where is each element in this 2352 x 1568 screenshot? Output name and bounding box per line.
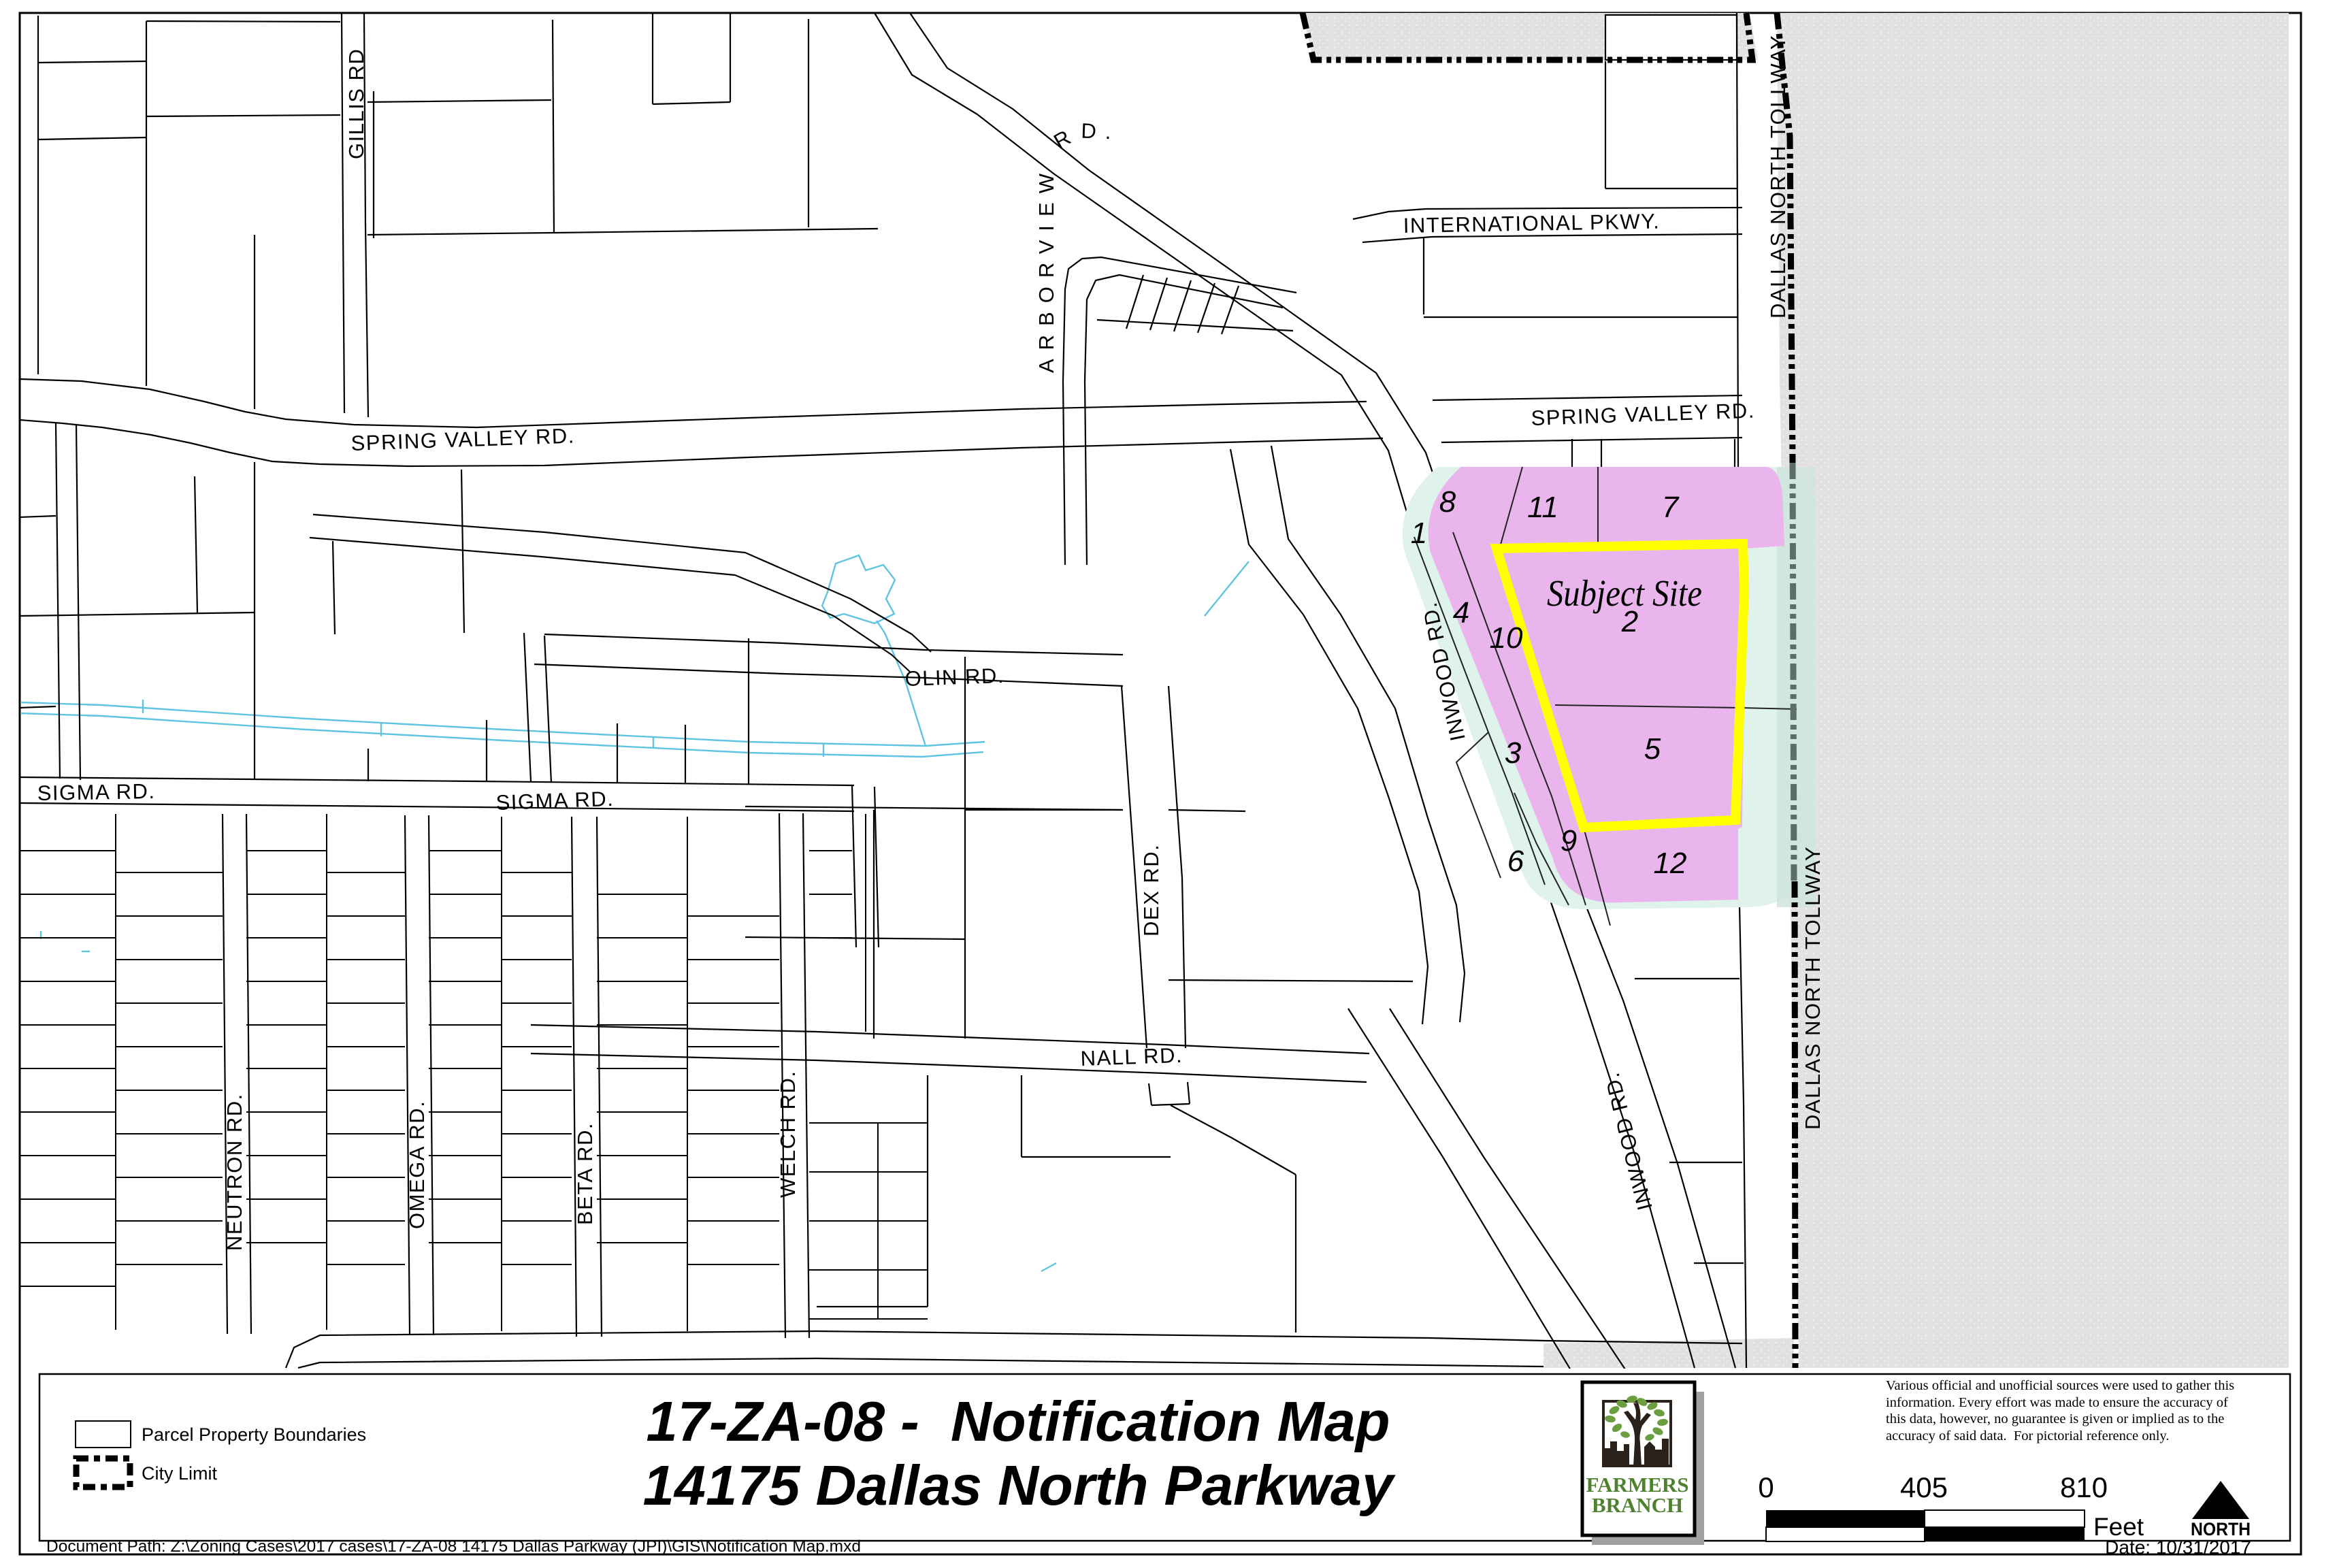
svg-text:405: 405 (1900, 1471, 1948, 1503)
svg-text:810: 810 (2060, 1471, 2108, 1503)
svg-text:4: 4 (1453, 596, 1469, 630)
svg-text:14175 Dallas North Parkway: 14175 Dallas North Parkway (643, 1454, 1396, 1517)
svg-text:8: 8 (1439, 485, 1456, 519)
svg-text:Document Path: Z:\Zoning Cases: Document Path: Z:\Zoning Cases\2017 case… (46, 1537, 861, 1556)
svg-text:5: 5 (1644, 732, 1661, 766)
svg-text:11: 11 (1527, 491, 1558, 524)
svg-text:SIGMA RD.: SIGMA RD. (495, 787, 615, 815)
svg-text:NEUTRON RD.: NEUTRON RD. (223, 1093, 246, 1251)
svg-text:Various official and unofficia: Various official and unofficial sources … (1886, 1378, 2234, 1393)
svg-text:0: 0 (1758, 1471, 1774, 1503)
svg-text:INTERNATIONAL PKWY.: INTERNATIONAL PKWY. (1403, 209, 1661, 238)
svg-text:information. Every effort was: information. Every effort was made to en… (1886, 1395, 2228, 1410)
svg-text:accuracy of said data. For pi: accuracy of said data. For pictorial ref… (1886, 1428, 2169, 1443)
svg-text:NALL RD.: NALL RD. (1080, 1043, 1183, 1071)
svg-text:DEX RD.: DEX RD. (1139, 844, 1163, 936)
svg-text:1: 1 (1411, 517, 1427, 550)
svg-text:BETA RD.: BETA RD. (573, 1122, 597, 1225)
svg-text:Date: 10/31/2017: Date: 10/31/2017 (2105, 1537, 2251, 1558)
svg-text:Subject Site: Subject Site (1547, 572, 1702, 614)
svg-text:DALLAS NORTH TOLLWAY: DALLAS NORTH TOLLWAY (1766, 35, 1790, 318)
svg-text:10: 10 (1490, 621, 1523, 655)
svg-text:SIGMA RD.: SIGMA RD. (37, 779, 156, 805)
svg-text:BRANCH: BRANCH (1592, 1493, 1683, 1517)
svg-text:OMEGA RD.: OMEGA RD. (405, 1100, 429, 1229)
svg-text:6: 6 (1507, 845, 1524, 878)
svg-text:GILLIS RD: GILLIS RD (344, 48, 368, 159)
svg-text:9: 9 (1561, 824, 1577, 857)
svg-text:City Limit: City Limit (142, 1463, 218, 1484)
svg-text:DALLAS NORTH TOLLWAY: DALLAS NORTH TOLLWAY (1801, 846, 1825, 1130)
svg-text:12: 12 (1654, 847, 1687, 880)
svg-text:OLIN RD.: OLIN RD. (904, 664, 1004, 691)
svg-text:17-ZA-08 - Notification Map: 17-ZA-08 - Notification Map (647, 1390, 1390, 1453)
svg-text:3: 3 (1505, 736, 1522, 770)
svg-text:this data, however, no guarant: this data, however, no guarantee is give… (1886, 1411, 2224, 1426)
svg-text:7: 7 (1662, 491, 1680, 524)
svg-text:WELCH RD.: WELCH RD. (776, 1071, 800, 1198)
svg-text:Parcel Property Boundaries: Parcel Property Boundaries (142, 1424, 366, 1445)
